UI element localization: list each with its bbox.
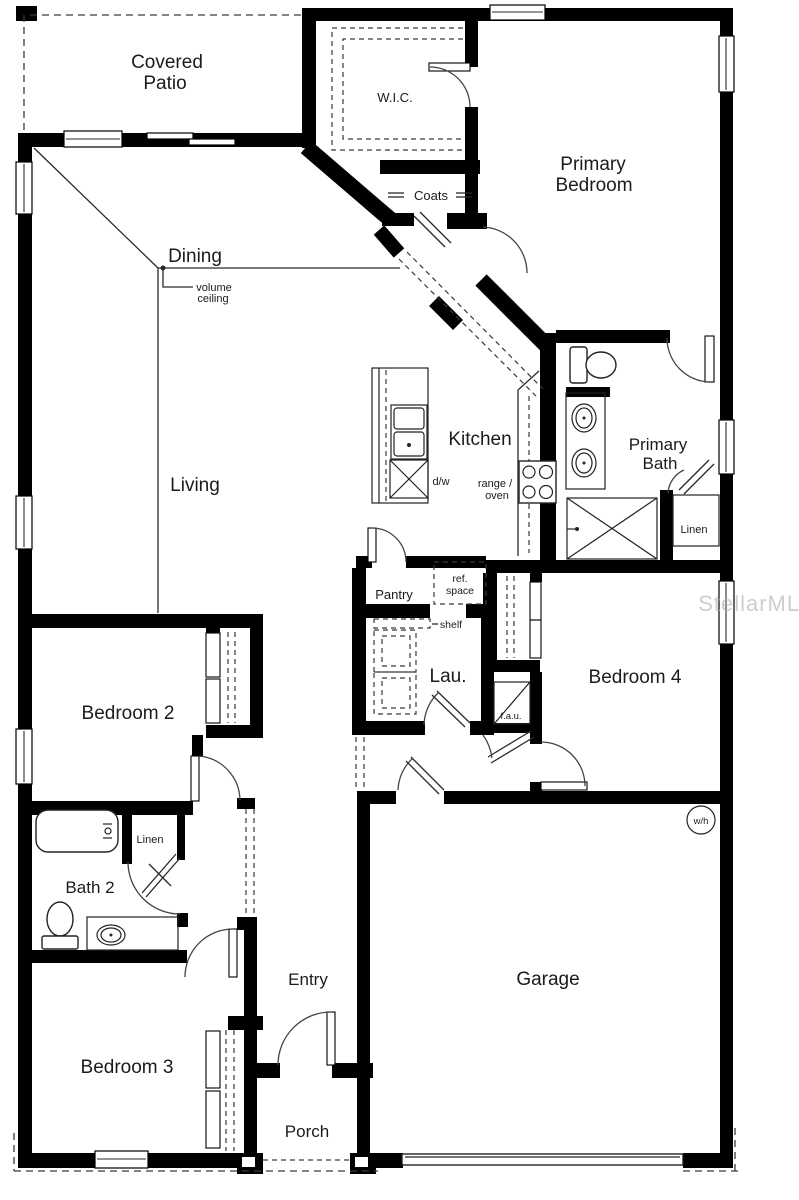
coats-door bbox=[414, 212, 451, 247]
range-oven bbox=[519, 461, 556, 503]
volume-ceiling-marker bbox=[161, 266, 166, 271]
laundry-shelf-outline bbox=[374, 619, 430, 628]
window-left-bedroom2 bbox=[16, 729, 32, 784]
room-label-laundry: Lau. bbox=[430, 666, 467, 687]
room-label-bedroom3: Bedroom 3 bbox=[81, 1057, 174, 1078]
front-door bbox=[278, 1012, 335, 1065]
room-labels: Covered Patio W.I.C. Primary Bedroom Coa… bbox=[65, 52, 799, 1141]
room-label-dining: Dining bbox=[168, 246, 222, 267]
window-top bbox=[490, 5, 545, 20]
floor-plan-page: Covered Patio W.I.C. Primary Bedroom Coa… bbox=[0, 0, 799, 1200]
window-bedroom3 bbox=[95, 1151, 148, 1168]
room-label-primary-bath: Primary bbox=[629, 435, 688, 454]
room-label-pantry: Pantry bbox=[375, 587, 413, 602]
bedroom3-door bbox=[185, 929, 237, 977]
primary-linen-shelf bbox=[673, 495, 719, 546]
room-label-coats: Coats bbox=[414, 188, 448, 203]
laundry-door bbox=[424, 691, 470, 727]
room-label-wic: W.I.C. bbox=[377, 90, 412, 105]
room-label-bedroom2: Bedroom 2 bbox=[82, 703, 175, 724]
bedroom2-closet-doors bbox=[206, 633, 220, 723]
room-label-primary-bedroom: Bedroom bbox=[555, 175, 632, 196]
primary-shower bbox=[567, 498, 657, 559]
fixtures bbox=[36, 347, 719, 1167]
room-label-living: Living bbox=[170, 475, 220, 496]
linen-hall-door bbox=[149, 864, 171, 886]
label-shelf: shelf bbox=[440, 619, 462, 631]
room-label-garage: Garage bbox=[516, 969, 579, 990]
window-right-primary-bath bbox=[719, 420, 734, 474]
window-left-living-upper bbox=[16, 162, 32, 214]
room-label-covered-patio: Patio bbox=[143, 73, 186, 94]
room-label-primary-bath: Bath bbox=[643, 454, 678, 473]
hall-ceiling-break bbox=[399, 259, 536, 396]
room-label-bath2: Bath 2 bbox=[65, 878, 114, 897]
label-range-oven: oven bbox=[485, 490, 509, 502]
garage-door bbox=[402, 1154, 683, 1165]
room-label-porch: Porch bbox=[285, 1122, 329, 1141]
window-right-primary-bedroom bbox=[719, 36, 734, 92]
wic-shelf-outer bbox=[332, 28, 463, 150]
bedroom2-door bbox=[191, 756, 240, 801]
room-label-linen-primary: Linen bbox=[681, 524, 708, 536]
label-water-heater: w/h bbox=[693, 816, 709, 827]
kitchen-island bbox=[372, 368, 428, 503]
primary-bath-toilet bbox=[570, 347, 616, 383]
room-label-kitchen: Kitchen bbox=[448, 429, 511, 450]
label-ref-space: space bbox=[446, 585, 474, 597]
bathtub bbox=[36, 810, 118, 852]
window-patio bbox=[64, 131, 122, 147]
bedroom4-door bbox=[541, 742, 587, 790]
room-label-bedroom4: Bedroom 4 bbox=[589, 667, 682, 688]
volume-ceiling-leader bbox=[163, 270, 193, 287]
bedroom4-closet-doors bbox=[530, 582, 541, 658]
bedroom3-closet-doors bbox=[206, 1031, 220, 1148]
pantry-door bbox=[368, 528, 406, 562]
bath2-vanity bbox=[87, 917, 178, 950]
primary-bedroom-door bbox=[483, 227, 527, 273]
window-left-living-lower bbox=[16, 496, 32, 549]
fau-door bbox=[483, 731, 534, 763]
washer-inner bbox=[382, 636, 410, 666]
label-range-oven: range / bbox=[478, 478, 513, 490]
floor-plan: Covered Patio W.I.C. Primary Bedroom Coa… bbox=[0, 0, 799, 1200]
primary-bath-door bbox=[667, 336, 714, 382]
note-volume-ceiling: ceiling bbox=[197, 293, 228, 305]
wic-shelf-inner bbox=[343, 39, 463, 139]
label-ref-space: ref. bbox=[452, 573, 467, 585]
dryer-inner bbox=[382, 678, 410, 708]
room-label-entry: Entry bbox=[288, 970, 328, 989]
dishwasher bbox=[390, 460, 428, 498]
bath2-door bbox=[128, 854, 180, 914]
room-label-covered-patio: Covered bbox=[131, 52, 203, 73]
watermark: StellarMLS bbox=[698, 591, 799, 616]
primary-bath-vanity bbox=[566, 393, 605, 489]
room-label-linen-hall: Linen bbox=[137, 834, 164, 846]
label-fau: f.a.u. bbox=[500, 711, 521, 722]
garage-entry-door bbox=[398, 757, 444, 794]
bath2-toilet bbox=[42, 902, 78, 949]
label-dishwasher: d/w bbox=[432, 476, 449, 488]
room-label-primary-bedroom: Primary bbox=[560, 154, 626, 175]
wic-door bbox=[429, 63, 470, 107]
